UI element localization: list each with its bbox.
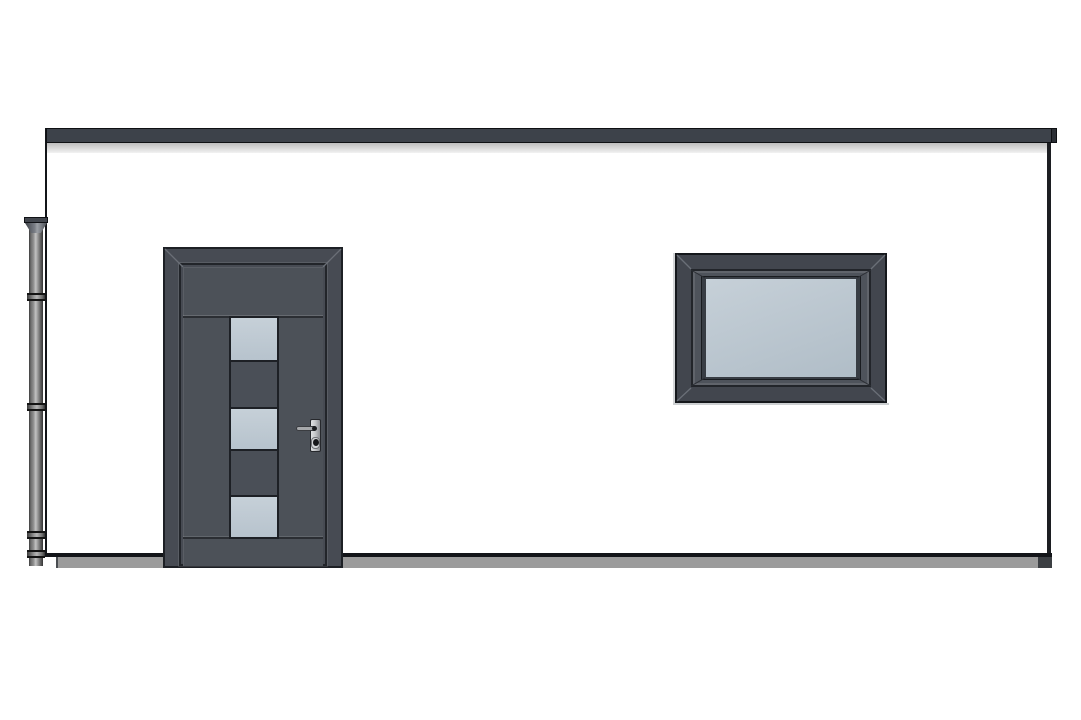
window-glass — [706, 279, 856, 377]
door-glass-panel — [231, 495, 277, 537]
handle-spindle — [312, 426, 317, 431]
pipe-coupling — [27, 293, 45, 301]
door-glass-panel — [231, 318, 277, 360]
elevation-drawing — [0, 0, 1081, 720]
plinth-left-cap — [56, 557, 58, 568]
door-glass-panel — [231, 407, 277, 449]
downpipe-hopper-top — [24, 217, 48, 223]
pipe-coupling — [27, 403, 45, 411]
plinth-end-cap — [1038, 557, 1052, 568]
keyhole-icon — [313, 439, 319, 446]
pipe-coupling — [27, 550, 45, 558]
roof-fascia — [46, 128, 1057, 143]
door-mid-panel — [231, 449, 277, 495]
window-outer-highlight-bottom — [673, 403, 889, 405]
fascia-shadow — [47, 143, 1050, 153]
window — [675, 253, 887, 403]
wall-left-edge — [45, 128, 47, 555]
wall-right-edge — [1047, 141, 1051, 557]
fascia-end-cap — [1051, 129, 1056, 142]
door-glass-column — [229, 316, 279, 539]
pipe-coupling — [27, 531, 45, 539]
door-mid-panel — [231, 360, 277, 407]
downpipe — [29, 229, 43, 566]
entrance-door — [163, 247, 343, 568]
